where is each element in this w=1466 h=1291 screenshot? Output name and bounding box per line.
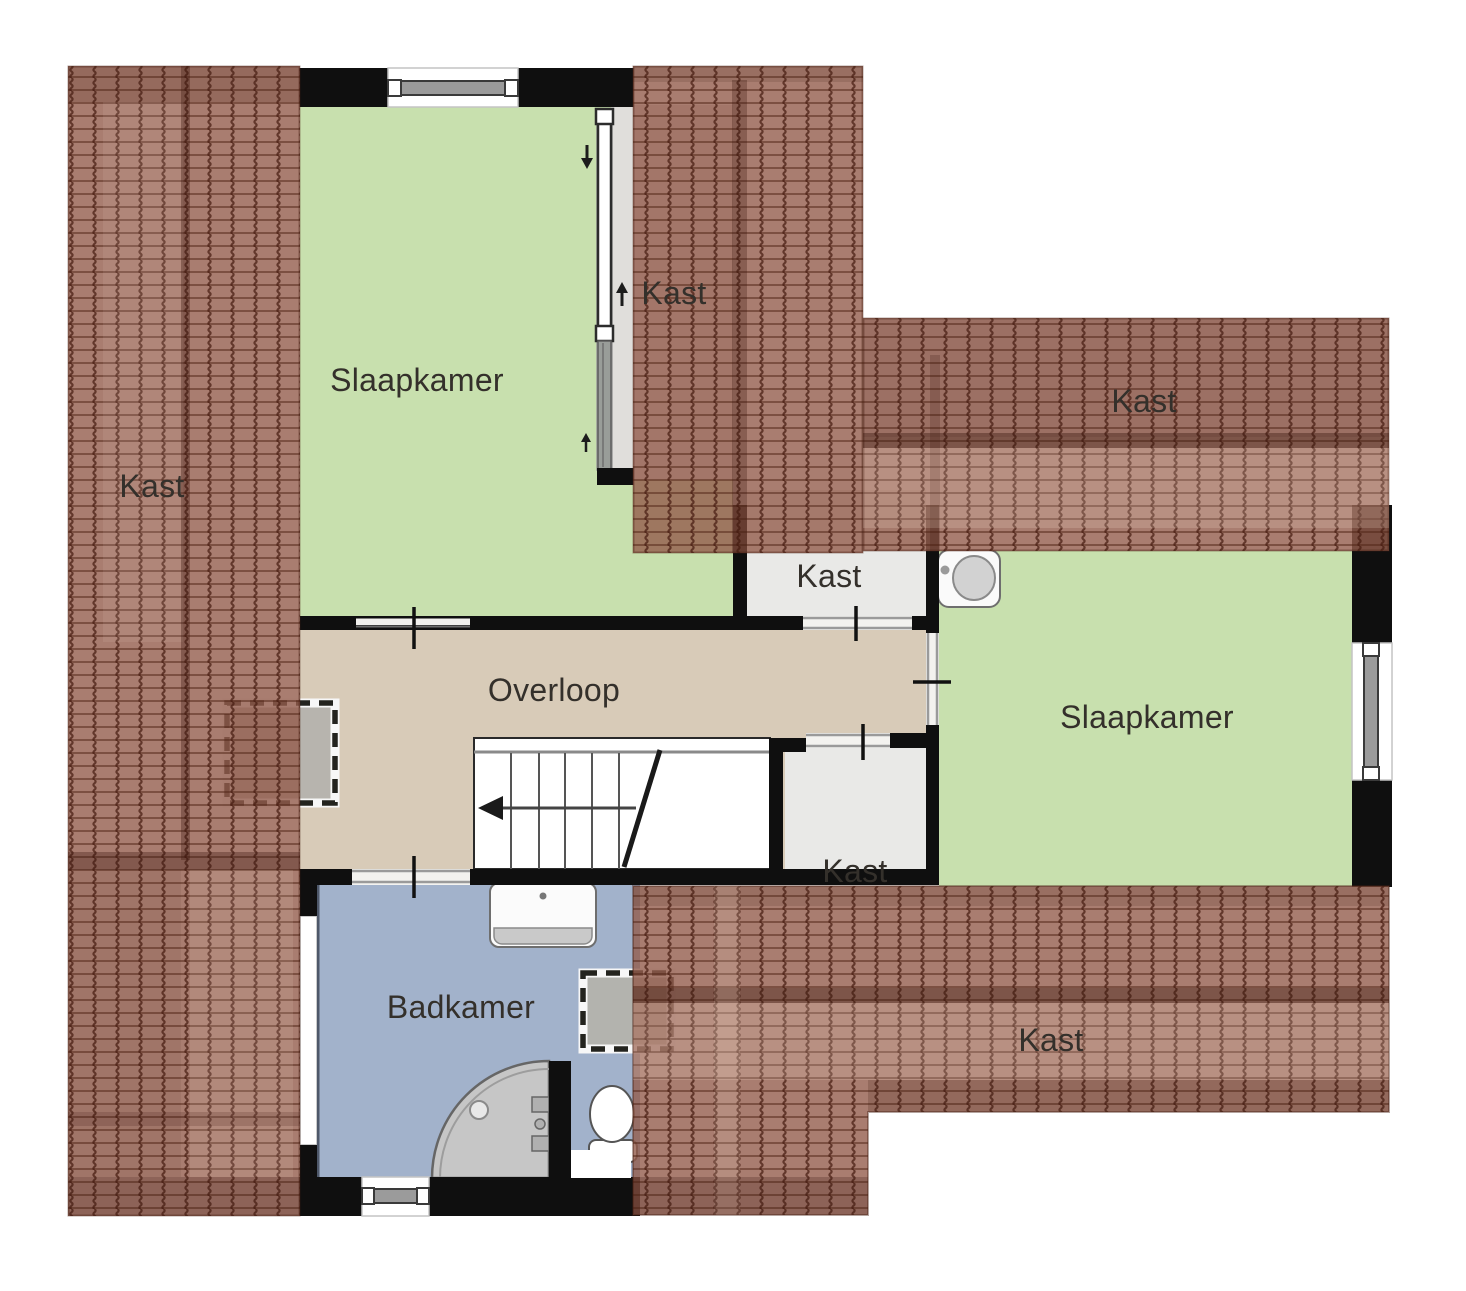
svg-text:Slaapkamer: Slaapkamer <box>1060 699 1234 735</box>
svg-text:Kast: Kast <box>822 853 887 889</box>
svg-text:Slaapkamer: Slaapkamer <box>330 362 504 398</box>
svg-text:Kast: Kast <box>119 468 184 504</box>
svg-text:Kast: Kast <box>1111 383 1176 419</box>
svg-text:Kast: Kast <box>1018 1022 1083 1058</box>
svg-text:Kast: Kast <box>641 275 706 311</box>
svg-text:Badkamer: Badkamer <box>387 989 535 1025</box>
svg-text:Kast: Kast <box>796 558 861 594</box>
svg-text:Overloop: Overloop <box>488 672 620 708</box>
